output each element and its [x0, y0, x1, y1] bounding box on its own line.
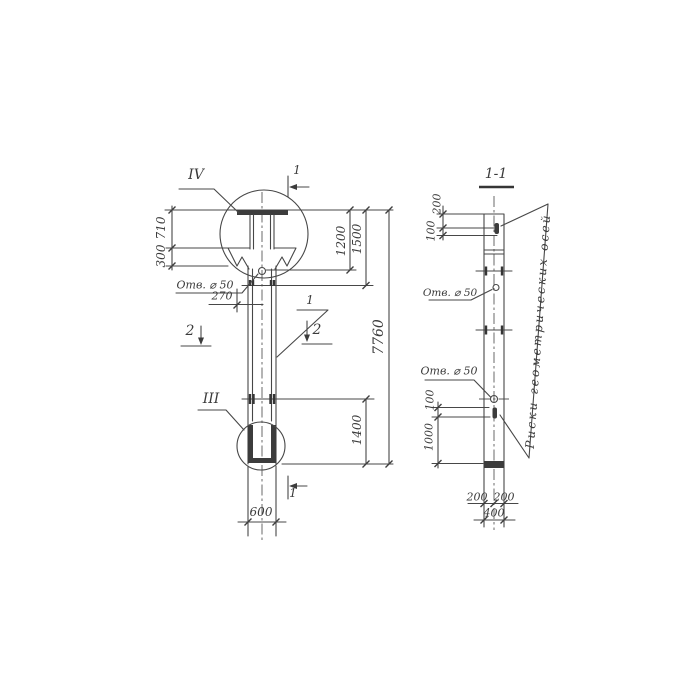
- dim-7760: 7760: [372, 319, 386, 355]
- section-title: 1-1: [485, 167, 508, 181]
- cut-label-left: 2: [186, 324, 195, 338]
- cut-arrow-right: [304, 335, 310, 343]
- drawing-linework: [0, 0, 700, 700]
- cut-arrow-left: [198, 338, 204, 346]
- hole-label-section-bottom: Отв. ⌀ 50: [421, 366, 478, 377]
- axis-notch-top: [495, 223, 500, 234]
- detail-circle-top: [220, 190, 308, 278]
- detail-label-bottom: III: [203, 392, 220, 406]
- dim-400: 400: [484, 508, 505, 519]
- detail-label-top: IV: [188, 168, 204, 182]
- detail-top-leader: [179, 189, 239, 213]
- dim-1400: 1400: [351, 415, 363, 446]
- dim-600: 600: [250, 506, 273, 518]
- hole-mark-section-top: [493, 285, 499, 291]
- cut-label-right: 2: [313, 323, 322, 337]
- dim-100-bottom: 100: [425, 390, 436, 411]
- cut-arrow-top: [289, 184, 297, 190]
- axis-notch-bottom: [493, 408, 498, 419]
- dim-1200: 1200: [335, 226, 347, 257]
- dim-200-top: 200: [432, 194, 443, 215]
- engineering-drawing-sheet: 1-1 IV III 1 1 2 2 1 Отв. ⌀ 50 710 300 2…: [0, 0, 700, 700]
- hole-label-section-top: Отв. ⌀ 50: [423, 288, 477, 299]
- dim-710: 710: [155, 217, 167, 240]
- pile-head-plate: [237, 210, 288, 215]
- detail-bottom-leader: [198, 410, 244, 430]
- dim-200-bottom-right: 200: [494, 492, 515, 503]
- dim-200-bottom-left: 200: [467, 492, 488, 503]
- position-label: 1: [306, 294, 314, 306]
- dim-100-top: 100: [426, 221, 437, 242]
- cut-label-top: 1: [293, 164, 301, 176]
- section-dimension-lines: [432, 206, 518, 520]
- section-tip-band: [484, 461, 504, 468]
- dim-270: 270: [212, 291, 233, 302]
- dim-1500: 1500: [351, 224, 363, 255]
- pile-console-left: [228, 248, 250, 269]
- pile-console-right: [274, 248, 296, 269]
- dim-300: 300: [155, 245, 167, 268]
- dim-1000: 1000: [424, 423, 435, 451]
- cut-label-bottom: 1: [289, 487, 297, 499]
- dimension-lines: [165, 206, 393, 536]
